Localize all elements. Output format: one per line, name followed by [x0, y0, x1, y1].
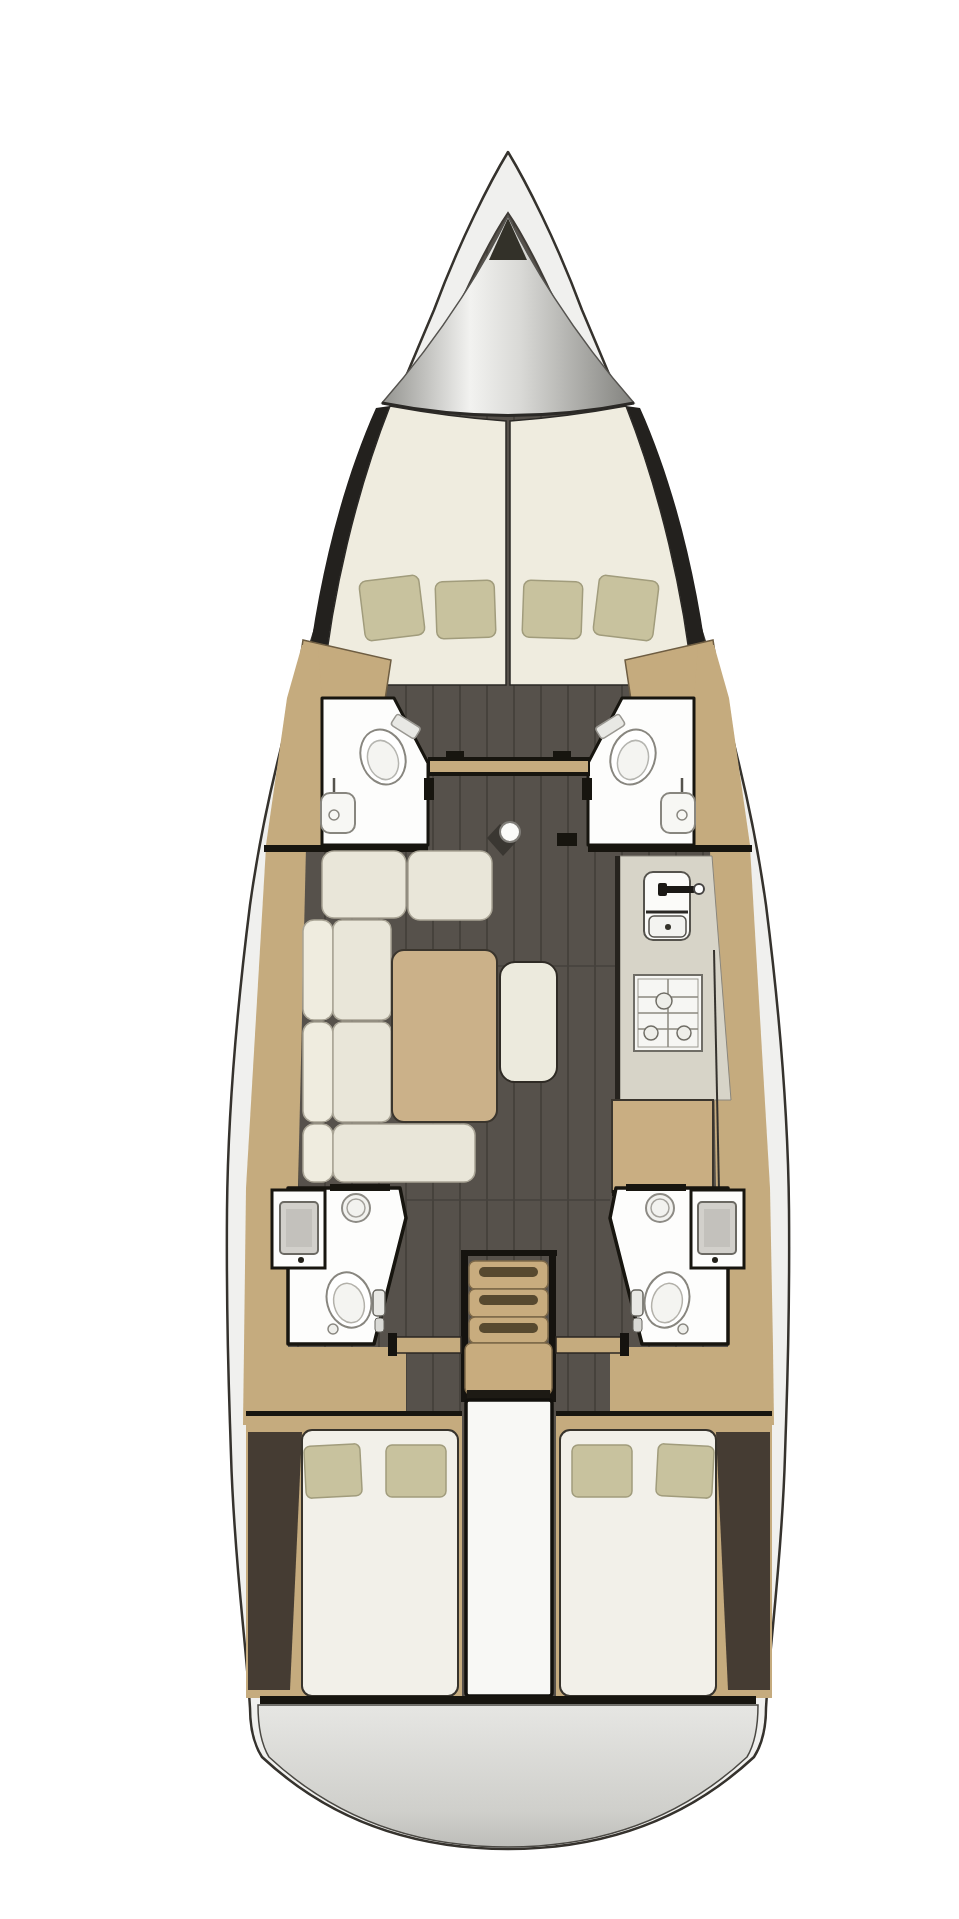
anchor-locker — [382, 216, 634, 416]
stove — [634, 975, 702, 1051]
yacht-floorplan — [0, 0, 959, 1919]
sink-basin-inner — [286, 1209, 312, 1247]
sofa-seat — [333, 1022, 391, 1122]
vberth-mattress-starboard — [510, 406, 693, 685]
sofa-seat — [333, 920, 391, 1020]
threshold-board-port — [396, 1337, 461, 1353]
beam-hardware — [446, 751, 464, 760]
sofa-cushion — [322, 851, 406, 918]
mast-post — [500, 822, 520, 842]
chart-table — [612, 1100, 713, 1192]
sink-drain — [712, 1257, 718, 1263]
threshold-cap-port — [388, 1333, 397, 1356]
toilet-base — [678, 1324, 688, 1334]
companionway-threshold — [461, 1250, 557, 1256]
engine-compartment — [466, 1400, 552, 1696]
stair-step-slot — [479, 1267, 538, 1277]
sink-basin-inner — [704, 1209, 730, 1247]
door-hinge — [582, 778, 592, 800]
nav-station — [612, 1100, 713, 1196]
threshold-cap-starboard — [620, 1333, 629, 1356]
sofa-backrest — [303, 920, 333, 1020]
toilet-base — [328, 1324, 338, 1334]
sofa-backrest — [303, 1124, 333, 1182]
sofa-corner-seat — [333, 1124, 475, 1182]
berth-headboard-line — [556, 1411, 772, 1416]
wood-band-starboard-forward — [694, 645, 750, 845]
stove-burner — [656, 993, 672, 1009]
starboard-aft-cabin — [556, 1411, 772, 1698]
stair-step-slot — [479, 1323, 538, 1333]
shower-drain — [646, 1194, 674, 1222]
hand-shower-hose — [633, 1318, 642, 1332]
beam-hardware — [553, 751, 571, 760]
pillow — [304, 1444, 363, 1499]
engine-box — [466, 1400, 552, 1696]
stove-burner — [644, 1026, 658, 1040]
door-hinge — [424, 778, 434, 800]
saloon-table — [392, 950, 497, 1122]
hand-shower — [373, 1290, 385, 1316]
stove-burner — [677, 1026, 691, 1040]
pillow — [593, 575, 660, 642]
bulkhead-hardware — [557, 833, 577, 846]
door-segment — [626, 1184, 686, 1191]
faucet-knob — [694, 884, 704, 894]
pillow — [359, 575, 426, 642]
vberth-mattress-port — [323, 406, 506, 685]
yacht-floorplan-canvas — [0, 0, 959, 1919]
aft-bulkhead-line — [260, 1696, 756, 1704]
beam-wood — [430, 761, 588, 772]
stair-landing — [465, 1343, 552, 1395]
galley-counter-edge — [615, 856, 620, 1102]
sink-drain — [665, 924, 671, 930]
wood-band-port-forward — [266, 645, 322, 845]
berth-headboard-line — [246, 1411, 462, 1416]
hand-shower — [631, 1290, 643, 1316]
swim-platform — [258, 1705, 758, 1847]
sofa-backrest — [303, 1022, 333, 1122]
pillow — [386, 1445, 446, 1497]
port-aft-cabin — [246, 1411, 462, 1698]
sink-drain — [298, 1257, 304, 1263]
transom — [258, 1696, 758, 1847]
faucet-arm — [662, 886, 696, 893]
pillow — [435, 580, 496, 639]
bench-seat — [500, 962, 557, 1082]
shower-drain — [342, 1194, 370, 1222]
bulkhead-line-starboard — [588, 845, 752, 852]
door-segment — [330, 1184, 390, 1191]
pillow — [656, 1444, 715, 1499]
stair-step-slot — [479, 1295, 538, 1305]
pillow — [572, 1445, 632, 1497]
hand-shower-hose — [375, 1318, 384, 1332]
threshold-board-starboard — [556, 1337, 621, 1353]
pillow — [522, 580, 583, 639]
sofa-cushion — [408, 851, 492, 920]
